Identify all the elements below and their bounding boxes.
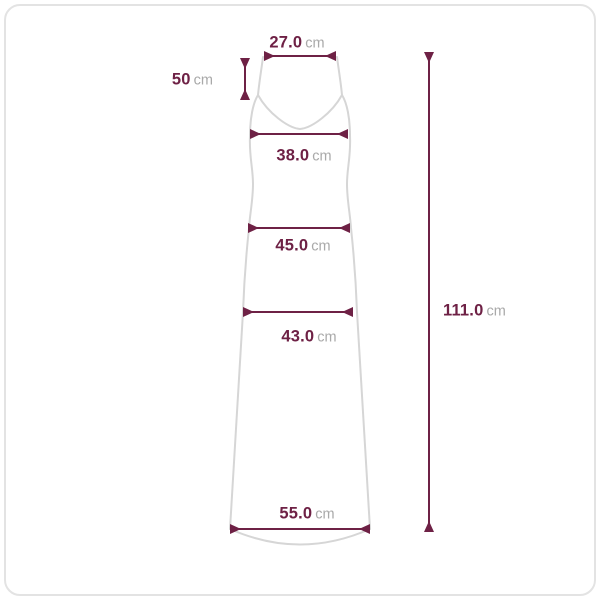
dimension-bust-width [250,129,348,139]
measurement-unit: cm [317,330,336,346]
arrowhead-right-icon [339,223,350,233]
measurement-value: 50 [172,71,191,89]
dress-neckline-outline [258,95,342,129]
dimension-hem-width [230,524,370,534]
measurement-value: 55.0 [279,505,312,523]
measurement-label-bust-width: 38.0cm [276,148,331,165]
measurement-unit: cm [305,36,324,52]
arrowhead-bottom-icon [424,521,434,532]
measurement-unit: cm [311,239,330,255]
measurement-value: 43.0 [281,328,314,346]
size-measurement-diagram: 27.0cm 50cm 38.0cm 45.0cm 43.0cm 111.0cm… [0,0,600,600]
arrowhead-top-icon [424,52,434,63]
arrowhead-left-icon [243,307,254,317]
dimension-top-width [264,51,336,61]
measurement-unit: cm [486,304,505,320]
measurement-unit: cm [312,149,331,165]
measurement-label-hem-width: 55.0cm [279,506,334,523]
measurement-label-total-length: 111.0cm [443,303,506,320]
measurement-value: 27.0 [269,34,302,52]
dimension-hip-width [243,307,353,317]
arrowhead-right-icon [337,129,348,139]
arrowhead-left-icon [248,223,259,233]
measurement-unit: cm [194,73,213,89]
arrowhead-right-icon [325,51,336,61]
arrowhead-top-icon [240,58,250,69]
dimension-total-length [424,52,434,532]
measurement-label-hip-width: 43.0cm [281,329,336,346]
measurement-value: 38.0 [276,147,309,165]
dimension-waist-width [248,223,350,233]
dimension-strap-length [240,58,250,100]
arrowhead-left-icon [250,129,261,139]
measurement-label-strap-length: 50cm [172,72,213,89]
arrowhead-right-icon [342,307,353,317]
measurement-unit: cm [315,507,334,523]
measurement-label-top-width: 27.0cm [269,35,324,52]
measurement-value: 45.0 [275,237,308,255]
arrowhead-left-icon [264,51,275,61]
arrowhead-bottom-icon [240,89,250,100]
measurement-label-waist-width: 45.0cm [275,238,330,255]
measurement-value: 111.0 [443,302,483,320]
